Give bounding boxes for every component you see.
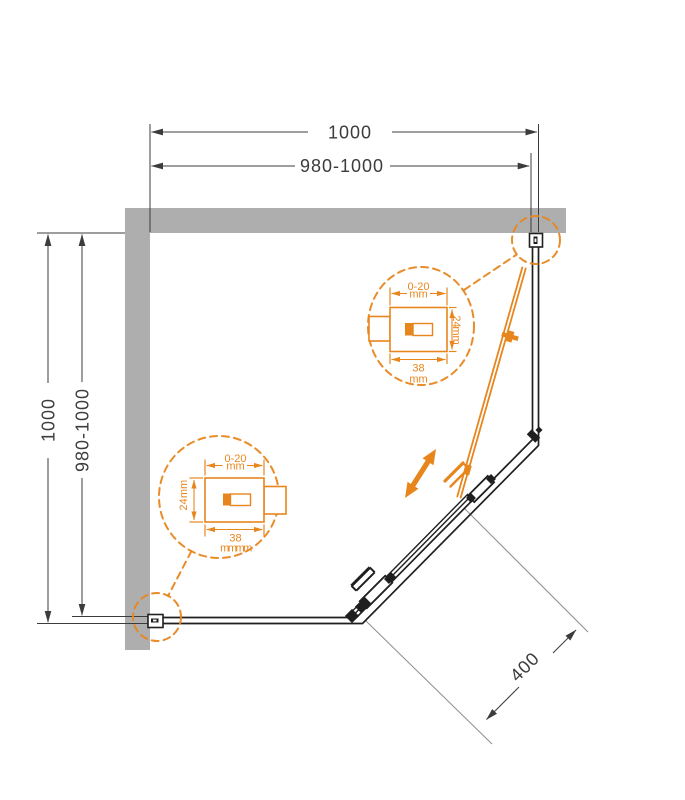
- dimension-top-adjustable: 980-1000: [152, 156, 530, 176]
- detail-top-depth-unit: mm: [450, 326, 462, 344]
- detail-bottom-profile-tab: [264, 487, 286, 515]
- dim-label-top-overall: 1000: [328, 123, 372, 143]
- callout-connector-bottom: [168, 551, 192, 596]
- callouts: [133, 216, 560, 641]
- walls: [125, 208, 566, 650]
- extension-door-lower: [366, 621, 492, 744]
- detail-top-profile-tab: [369, 317, 390, 342]
- dim-label-left-adjustable: 980-1000: [73, 388, 93, 472]
- wall-profile-top-right: [530, 234, 543, 248]
- fixed-frame: [164, 247, 539, 624]
- detail-bottom-range-unit: mm: [226, 461, 244, 473]
- dim-label-door-opening: 400: [506, 648, 544, 686]
- slide-direction-arrow: [405, 449, 436, 498]
- sliding-door-line-a: [457, 268, 522, 497]
- top-corner-bolt: [535, 426, 542, 433]
- detail-bottom-profile-slot-block: [223, 494, 231, 506]
- wall-profile-bottom-left-slot-gap: [153, 620, 157, 622]
- wall-top: [125, 208, 566, 233]
- detail-top-profile-section: 0-20 mm 24 mm 38 mm: [369, 281, 462, 386]
- fixed-panel-handle-post-b: [370, 567, 375, 572]
- detail-top-profile-slot: [413, 324, 433, 336]
- dim-label-top-adjustable: 980-1000: [300, 156, 384, 176]
- wall-profile-bottom-left: [148, 615, 163, 628]
- fixed-panel-handle-outer-bar: [351, 567, 369, 585]
- dimension-left-adjustable: 980-1000: [73, 235, 93, 616]
- dim-line-door-right: [553, 630, 576, 653]
- frame-inner-line: [164, 247, 533, 618]
- callout-connector-top: [464, 255, 516, 290]
- detail-bottom-depth-unit: mm: [178, 480, 190, 498]
- dimension-left-overall: 1000: [39, 235, 59, 623]
- fixed-panel-handle-post-a: [351, 586, 356, 591]
- detail-top-width-unit: mm: [409, 374, 427, 386]
- dim-line-door-left: [487, 687, 520, 720]
- detail-top-range-unit: mm: [409, 289, 427, 301]
- frame-outer-line: [164, 247, 539, 624]
- dim-label-left-overall: 1000: [39, 398, 59, 442]
- dimension-top-overall: 1000: [152, 123, 537, 143]
- detail-bottom-profile-slot: [231, 494, 251, 506]
- detail-top-profile-slot-block: [405, 323, 413, 336]
- detail-bottom-depth-label: 24: [178, 498, 190, 510]
- hardware-black: [345, 426, 543, 623]
- dimension-door-opening: 400: [366, 508, 588, 744]
- wall-left: [125, 208, 150, 650]
- wall-profile-top-right-slot-gap: [535, 239, 537, 243]
- detail-bottom-profile-section: 0-20 mm mm 24 38 mmmm: [178, 453, 286, 555]
- extension-door-upper: [464, 508, 588, 632]
- shower-enclosure-plan-diagram: 1000 980-1000 1000 980-1000 400: [0, 0, 685, 800]
- extension-lines: [37, 124, 539, 624]
- detail-bottom-width-unit: mmmm: [220, 543, 252, 555]
